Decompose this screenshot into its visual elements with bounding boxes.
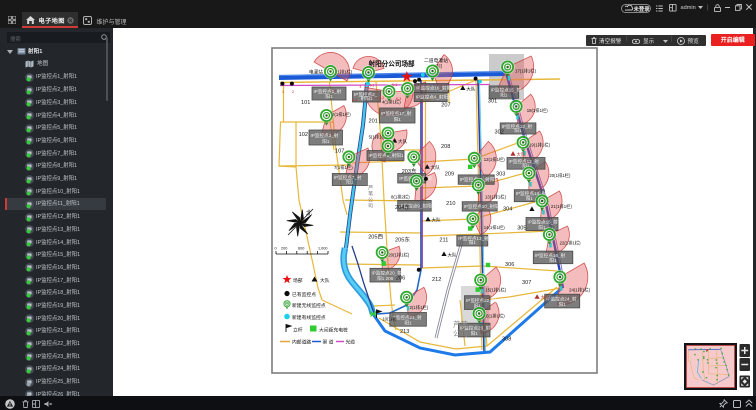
svg-text:205东: 205东 (395, 235, 410, 243)
svg-text:IP监控点4_射阳1: IP监控点4_射阳1 (416, 94, 451, 101)
svg-text:101: 101 (301, 100, 310, 106)
svg-text:211: 211 (439, 237, 448, 243)
svg-text:IP监控点3_射: IP监控点3_射 (311, 132, 339, 139)
svg-text:芦苇: 芦苇 (453, 319, 468, 329)
svg-text:阳1: 阳1 (514, 127, 522, 134)
svg-text:阳1: 阳1 (325, 93, 333, 100)
svg-text:电灌站: 电灌站 (309, 69, 323, 76)
svg-text:308: 308 (502, 336, 511, 342)
svg-text:大队: 大队 (516, 151, 526, 158)
svg-text:14(1排1栏): 14(1排1栏) (484, 224, 506, 231)
svg-text:IP监控点10_射阳: IP监控点10_射阳 (464, 203, 499, 210)
svg-text:210: 210 (446, 201, 455, 207)
svg-text:18(1排1栏): 18(1排1栏) (527, 107, 549, 114)
svg-text:102: 102 (299, 132, 308, 138)
svg-text:射阳分公司场部: 射阳分公司场部 (368, 59, 416, 68)
svg-text:208: 208 (441, 144, 450, 150)
svg-text:渠 道: 渠 道 (323, 339, 334, 346)
svg-text:射阳1: 射阳1 (361, 95, 373, 102)
svg-text:4-3: 4-3 (352, 98, 357, 102)
svg-text:立杆: 立杆 (293, 327, 303, 334)
svg-text:20(1排1栏): 20(1排1栏) (549, 172, 571, 179)
svg-text:阳1: 阳1 (549, 257, 557, 264)
svg-text:0: 0 (275, 247, 277, 251)
svg-text:阳1: 阳1 (559, 301, 567, 308)
svg-text:212: 212 (432, 277, 441, 283)
svg-text:301: 301 (488, 99, 497, 105)
svg-text:21(1排1栏): 21(1排1栏) (551, 203, 573, 210)
svg-text:22(1排1栏): 22(1排1栏) (560, 239, 582, 246)
svg-text:IP监控点16_射阳1: IP监控点16_射阳1 (416, 85, 454, 92)
svg-text:2: 2 (292, 90, 294, 94)
svg-text:大间距充电桩: 大间距充电桩 (319, 327, 348, 334)
svg-text:209: 209 (445, 172, 454, 178)
svg-text:阳1: 阳1 (471, 330, 479, 337)
svg-text:201: 201 (369, 119, 378, 125)
svg-text:阳1: 阳1 (346, 179, 354, 186)
svg-text:203东: 203东 (402, 167, 417, 175)
svg-text:IP监控点22_射: IP监控点22_射 (466, 297, 497, 304)
svg-text:大队: 大队 (431, 164, 441, 171)
svg-text:19(1排1栏): 19(1排1栏) (529, 141, 551, 148)
svg-text:12(1排1栏): 12(1排1栏) (484, 156, 506, 163)
svg-text:公司: 公司 (453, 329, 468, 338)
svg-text:1: 1 (282, 90, 284, 94)
svg-text:4-1: 4-1 (369, 84, 374, 88)
svg-text:IP监控点17_射: IP监控点17_射 (381, 110, 412, 117)
svg-text:6: 6 (477, 83, 479, 87)
svg-text:13(1排1栏): 13(1排1栏) (485, 193, 507, 200)
svg-text:7: 7 (419, 86, 421, 90)
svg-text:大队: 大队 (431, 217, 441, 224)
svg-text:16(1排1栏): 16(1排1栏) (484, 313, 506, 320)
svg-text:新建有线监控点: 新建有线监控点 (292, 314, 326, 321)
svg-text:20(1排1栏): 20(1排1栏) (388, 252, 410, 259)
svg-text:新建无线监控点: 新建无线监控点 (292, 302, 326, 309)
svg-text:2(1排1栏): 2(1排1栏) (410, 304, 429, 311)
svg-text:4: 4 (360, 85, 362, 89)
svg-text:304: 304 (503, 207, 512, 213)
svg-text:大队: 大队 (541, 294, 551, 301)
svg-text:302: 302 (495, 130, 504, 136)
svg-text:北: 北 (306, 209, 312, 217)
svg-text:306: 306 (505, 262, 514, 268)
svg-text:204东: 204东 (395, 203, 410, 211)
svg-text:阳1: 阳1 (526, 195, 534, 202)
svg-text:200: 200 (281, 247, 287, 251)
svg-text:大队: 大队 (466, 85, 476, 92)
svg-text:阳1: 阳1 (394, 116, 402, 123)
svg-text:307: 307 (522, 280, 531, 286)
svg-text:6-3: 6-3 (396, 97, 401, 101)
svg-text:15(1排1栏): 15(1排1栏) (485, 287, 507, 294)
svg-text:大队: 大队 (447, 251, 457, 258)
svg-text:光缆: 光缆 (346, 339, 356, 346)
svg-text:阳1: 阳1 (500, 92, 508, 99)
svg-text:24(1排1栏): 24(1排1栏) (569, 287, 591, 294)
svg-text:303: 303 (496, 172, 505, 178)
svg-text:IP监控点6_射阳1: IP监控点6_射阳1 (369, 152, 404, 159)
svg-text:已有监控点: 已有监控点 (292, 291, 316, 298)
svg-text:1: 1 (334, 89, 336, 93)
svg-text:阳1: 阳1 (322, 138, 330, 145)
svg-text:内部道路: 内部道路 (292, 339, 311, 346)
svg-text:305: 305 (517, 226, 526, 232)
svg-text:大队: 大队 (398, 138, 408, 145)
svg-text:场部: 场部 (293, 277, 303, 284)
svg-text:芦苇公司: 芦苇公司 (367, 184, 373, 209)
svg-text:阳1: 阳1 (405, 319, 413, 326)
svg-text:4-2: 4-2 (379, 96, 384, 100)
svg-text:206: 206 (396, 275, 405, 281)
svg-text:10(1排): 10(1排) (382, 316, 397, 323)
svg-text:17(1排1栏): 17(1排1栏) (515, 67, 537, 74)
svg-text:大队: 大队 (320, 277, 330, 284)
svg-text:7(1排1栏): 7(1排1栏) (334, 164, 353, 171)
svg-text:8(1排2栏): 8(1排2栏) (391, 193, 410, 200)
svg-text:213: 213 (400, 329, 409, 335)
svg-text:(1排1栏): (1排1栏) (336, 69, 353, 76)
svg-text:600: 600 (298, 247, 304, 251)
svg-text:205西: 205西 (368, 234, 383, 241)
svg-text:3(1排1栏): 3(1排1栏) (332, 111, 351, 118)
svg-text:1,000: 1,000 (318, 247, 328, 251)
svg-text:阳1 206: 阳1 206 (377, 275, 394, 282)
svg-text:阳1: 阳1 (469, 239, 477, 246)
svg-text:207: 207 (441, 102, 450, 108)
